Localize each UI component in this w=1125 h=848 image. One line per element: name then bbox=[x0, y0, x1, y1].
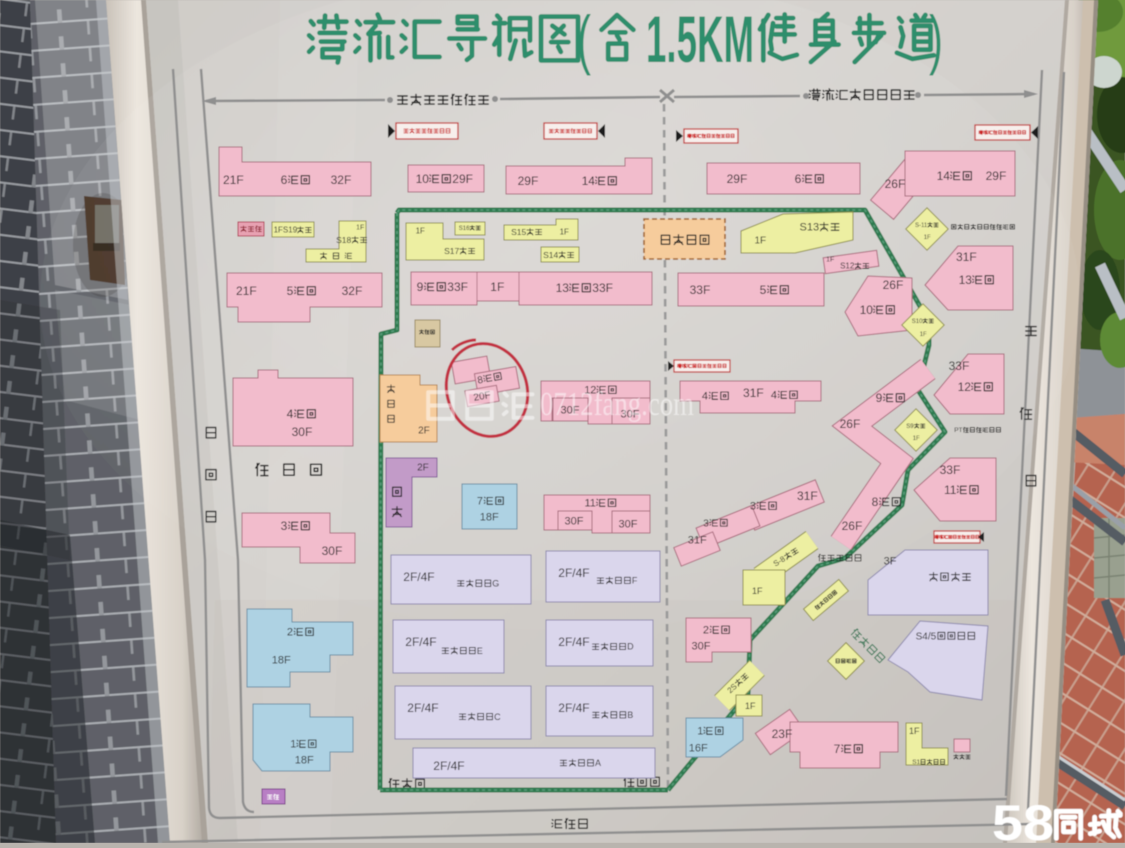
svg-text:S-11: S-11 bbox=[915, 223, 928, 229]
svg-text:F: F bbox=[632, 576, 638, 586]
svg-text:3: 3 bbox=[703, 518, 709, 529]
svg-text:26F: 26F bbox=[883, 278, 904, 292]
svg-text:0712fang.com: 0712fang.com bbox=[540, 386, 694, 423]
svg-text:26F: 26F bbox=[885, 177, 906, 191]
svg-text:4: 4 bbox=[702, 391, 708, 403]
svg-text:3: 3 bbox=[281, 519, 288, 533]
svg-text:32F: 32F bbox=[331, 173, 352, 187]
svg-text:1F: 1F bbox=[490, 280, 504, 294]
svg-text:2: 2 bbox=[287, 627, 293, 639]
svg-text:1F: 1F bbox=[416, 227, 425, 236]
svg-text:5: 5 bbox=[287, 284, 294, 298]
svg-text:2F/4F: 2F/4F bbox=[407, 701, 438, 715]
svg-text:30F: 30F bbox=[322, 544, 343, 558]
svg-text:1F: 1F bbox=[826, 256, 834, 263]
svg-text:23F: 23F bbox=[772, 727, 793, 741]
svg-text:3F: 3F bbox=[884, 556, 897, 568]
svg-text:8: 8 bbox=[872, 495, 879, 509]
svg-text:B: B bbox=[627, 710, 633, 720]
svg-text:29F: 29F bbox=[986, 169, 1007, 183]
svg-text:30F: 30F bbox=[619, 519, 638, 531]
svg-text:9: 9 bbox=[876, 391, 883, 405]
svg-text:S9: S9 bbox=[906, 424, 914, 430]
svg-text:12: 12 bbox=[958, 380, 972, 394]
svg-text:D: D bbox=[627, 642, 634, 652]
svg-text:2: 2 bbox=[703, 625, 709, 637]
svg-text:13: 13 bbox=[959, 273, 973, 287]
svg-text:26F: 26F bbox=[840, 417, 861, 431]
svg-text:1FS19: 1FS19 bbox=[274, 226, 298, 235]
svg-text:26F: 26F bbox=[842, 519, 863, 533]
svg-text:30F: 30F bbox=[692, 641, 711, 653]
svg-text:13: 13 bbox=[556, 281, 570, 295]
svg-text:2F/4F: 2F/4F bbox=[405, 635, 436, 649]
svg-text:2F: 2F bbox=[417, 462, 429, 473]
svg-text:E: E bbox=[477, 646, 483, 656]
svg-text:2F/4F: 2F/4F bbox=[558, 566, 589, 580]
svg-text:): ) bbox=[929, 2, 943, 76]
svg-text:7: 7 bbox=[834, 742, 841, 756]
svg-text:9: 9 bbox=[417, 280, 424, 294]
svg-text:18F: 18F bbox=[295, 755, 314, 767]
svg-text:31F: 31F bbox=[956, 250, 977, 264]
svg-text:2F/4F: 2F/4F bbox=[433, 759, 464, 773]
svg-text:14: 14 bbox=[937, 169, 951, 183]
svg-text:S13: S13 bbox=[800, 222, 820, 234]
svg-text:30F: 30F bbox=[292, 425, 313, 439]
svg-text:29F: 29F bbox=[452, 172, 473, 186]
svg-text:2F/4F: 2F/4F bbox=[403, 570, 434, 584]
svg-text:S10: S10 bbox=[912, 319, 923, 325]
svg-text:S17: S17 bbox=[444, 246, 459, 256]
svg-text:21F: 21F bbox=[236, 284, 257, 298]
svg-text:1: 1 bbox=[697, 726, 703, 738]
svg-text:33F: 33F bbox=[592, 281, 613, 295]
svg-text:10: 10 bbox=[860, 303, 874, 317]
svg-text:PT: PT bbox=[954, 427, 962, 434]
svg-text:4: 4 bbox=[771, 390, 777, 402]
svg-text:A: A bbox=[595, 758, 601, 768]
svg-text:33F: 33F bbox=[949, 359, 970, 373]
svg-text:1F: 1F bbox=[913, 436, 920, 442]
svg-text:5: 5 bbox=[760, 283, 767, 297]
svg-text:31F: 31F bbox=[688, 535, 707, 547]
svg-text:33F: 33F bbox=[447, 280, 468, 294]
svg-text:58: 58 bbox=[992, 795, 1054, 843]
svg-text:33F: 33F bbox=[940, 463, 961, 477]
svg-text:G: G bbox=[492, 579, 499, 589]
svg-text:1F: 1F bbox=[560, 228, 569, 237]
svg-text:29F: 29F bbox=[518, 174, 539, 188]
svg-text:S18: S18 bbox=[336, 235, 351, 245]
svg-text:11: 11 bbox=[944, 483, 957, 497]
svg-text:3: 3 bbox=[750, 501, 756, 513]
svg-text:1F: 1F bbox=[924, 235, 931, 241]
svg-text:18F: 18F bbox=[272, 655, 291, 667]
svg-text:16F: 16F bbox=[689, 743, 708, 755]
svg-text:1F: 1F bbox=[755, 235, 767, 246]
svg-text:14: 14 bbox=[582, 174, 596, 188]
svg-text:7: 7 bbox=[477, 496, 483, 508]
svg-text:S1: S1 bbox=[912, 759, 920, 766]
svg-text:1.5KM: 1.5KM bbox=[646, 2, 754, 76]
svg-text:C: C bbox=[494, 712, 501, 722]
svg-text:S16: S16 bbox=[459, 226, 470, 232]
svg-text:32F: 32F bbox=[342, 284, 363, 298]
svg-text:1: 1 bbox=[290, 739, 296, 751]
svg-text:2F/4F: 2F/4F bbox=[558, 701, 589, 715]
svg-text:1F: 1F bbox=[745, 701, 756, 711]
svg-text:(: ( bbox=[577, 2, 591, 76]
svg-text:10: 10 bbox=[416, 172, 430, 186]
svg-text:30F: 30F bbox=[565, 516, 584, 528]
svg-text:21F: 21F bbox=[223, 173, 244, 187]
svg-text:11: 11 bbox=[585, 498, 596, 510]
svg-text:6: 6 bbox=[281, 173, 288, 187]
svg-text:6: 6 bbox=[795, 172, 802, 186]
svg-text:31F: 31F bbox=[797, 489, 818, 503]
svg-text:1F: 1F bbox=[356, 224, 364, 231]
svg-text:29F: 29F bbox=[727, 172, 748, 186]
svg-text:S12: S12 bbox=[840, 262, 855, 271]
svg-text:4: 4 bbox=[287, 407, 294, 421]
svg-text:31F: 31F bbox=[743, 386, 764, 400]
svg-text:2F: 2F bbox=[418, 425, 430, 436]
svg-text:1F: 1F bbox=[752, 586, 763, 596]
svg-text:1F: 1F bbox=[909, 726, 920, 736]
svg-text:18F: 18F bbox=[480, 512, 499, 524]
svg-text:S14: S14 bbox=[543, 250, 558, 260]
svg-text:S4/5: S4/5 bbox=[916, 631, 937, 642]
svg-text:2F/4F: 2F/4F bbox=[558, 635, 589, 649]
svg-text:33F: 33F bbox=[690, 283, 711, 297]
svg-text:S15: S15 bbox=[511, 227, 526, 237]
svg-text:1F: 1F bbox=[920, 332, 927, 338]
